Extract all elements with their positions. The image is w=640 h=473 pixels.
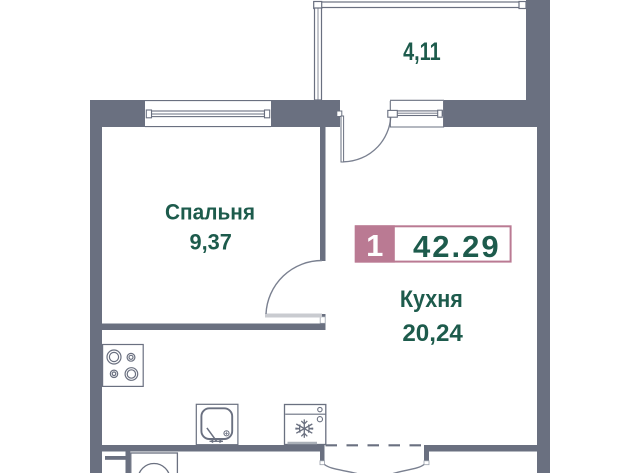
svg-text:9,37: 9,37 — [190, 230, 232, 255]
svg-text:42.29: 42.29 — [413, 229, 501, 264]
svg-text:20,24: 20,24 — [402, 320, 463, 347]
svg-text:Спальня: Спальня — [165, 199, 255, 224]
svg-text:4,11: 4,11 — [403, 38, 441, 66]
svg-text:Кухня: Кухня — [400, 286, 463, 313]
svg-text:1: 1 — [366, 228, 383, 263]
